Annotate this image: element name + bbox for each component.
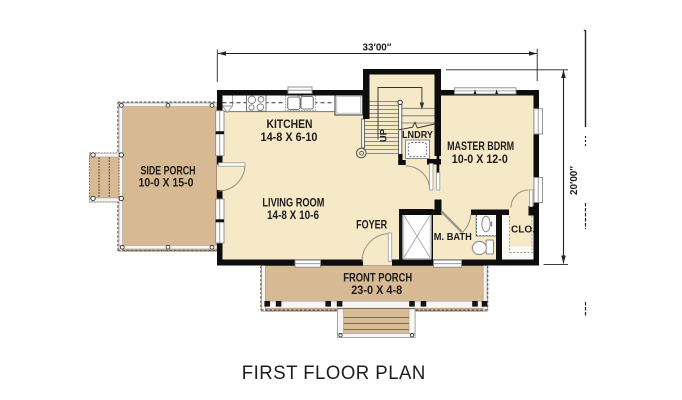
- svg-text:10-0 X 15-0: 10-0 X 15-0: [139, 177, 194, 189]
- svg-text:14-8 X 10-6: 14-8 X 10-6: [267, 210, 319, 222]
- svg-text:UP: UP: [379, 128, 390, 142]
- svg-text:LNDRY: LNDRY: [402, 130, 433, 141]
- svg-text:FOYER: FOYER: [356, 219, 388, 231]
- svg-text:23-0 X 4-8: 23-0 X 4-8: [351, 285, 403, 297]
- svg-text:MASTER BDRM: MASTER BDRM: [447, 139, 514, 153]
- svg-text:10-0 X 12-0: 10-0 X 12-0: [452, 154, 508, 166]
- svg-text:14-8 X 6-10: 14-8 X 6-10: [261, 132, 318, 144]
- svg-text:CLO.: CLO.: [511, 224, 535, 235]
- svg-text:KITCHEN: KITCHEN: [267, 117, 313, 131]
- svg-text:LIVING ROOM: LIVING ROOM: [262, 196, 324, 210]
- svg-text:FIRST FLOOR PLAN: FIRST FLOOR PLAN: [242, 363, 426, 384]
- svg-text:SIDE PORCH: SIDE PORCH: [141, 164, 196, 178]
- svg-text:M. BATH: M. BATH: [434, 231, 472, 243]
- svg-text:20′00″: 20′00″: [569, 166, 580, 195]
- svg-text:FRONT PORCH: FRONT PORCH: [343, 270, 412, 284]
- svg-text:33′00″: 33′00″: [363, 42, 392, 53]
